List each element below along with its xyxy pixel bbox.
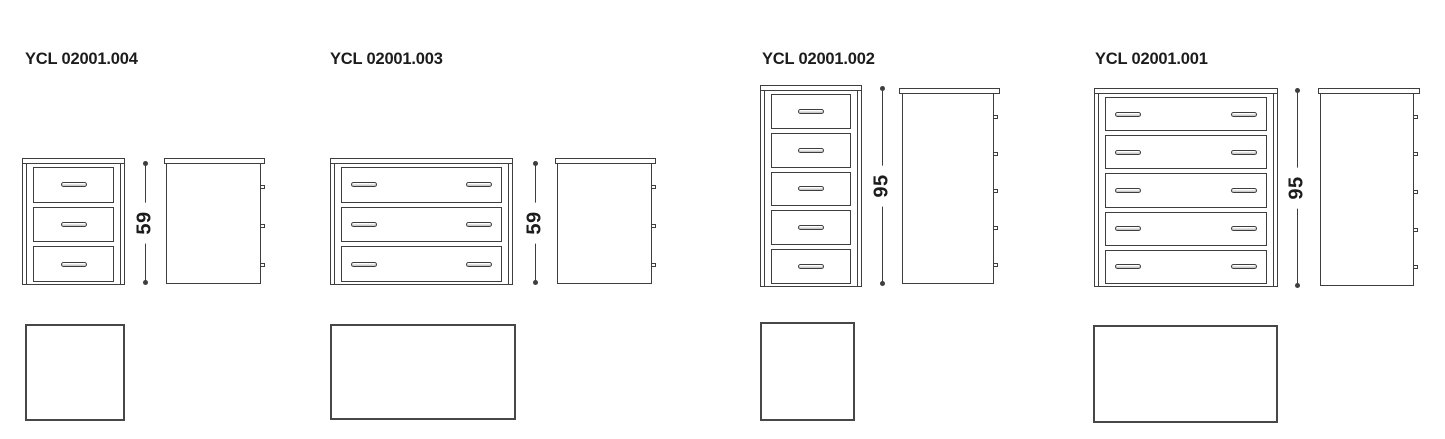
side-drawer-level (1320, 175, 1414, 209)
side-handle-mark (1413, 190, 1418, 194)
side-drawer-level (1320, 138, 1414, 172)
drawer-front (1105, 250, 1267, 284)
drawer-handle (1115, 264, 1141, 269)
side-drawer-level (1320, 213, 1414, 247)
side-drawer-level (1320, 250, 1414, 284)
side-handle-mark (1413, 265, 1418, 269)
drawer-handle (1115, 188, 1141, 193)
product-group-ycl-02001-001: YCL 02001.001 95 (0, 0, 1445, 439)
front-view (1094, 88, 1278, 287)
side-view-top-board (164, 158, 265, 164)
drawer-front (1105, 173, 1267, 207)
drawer-handle (1231, 150, 1257, 155)
cabinet-top-board (1095, 89, 1277, 94)
dimension-value: 95 (871, 165, 894, 206)
side-handle-mark (1413, 152, 1418, 156)
furniture-dimension-sheet: YCL 02001.004 59 YCL 02001.003 (0, 0, 1445, 439)
height-dimension: 95 (1283, 88, 1311, 288)
dimension-value: 95 (1286, 167, 1309, 208)
drawer-handle (1231, 264, 1257, 269)
right-stile (1273, 94, 1277, 286)
side-handle-mark (1413, 115, 1418, 119)
drawer-handle (1231, 226, 1257, 231)
dimension-value: 59 (524, 202, 547, 243)
drawer-handle (1231, 112, 1257, 117)
left-stile (1095, 94, 1099, 286)
drawer-handle (1115, 226, 1141, 231)
drawer-front (1105, 135, 1267, 169)
drawer-front (1105, 97, 1267, 131)
top-view (1093, 325, 1278, 423)
drawer-handle (1115, 112, 1141, 117)
drawer-front (1105, 212, 1267, 246)
drawer-handle (1231, 188, 1257, 193)
drawer-stack (1105, 97, 1267, 284)
side-view-top-board (555, 158, 656, 164)
side-view-handle-marks (1320, 100, 1414, 284)
side-view-top-board (899, 88, 1000, 94)
drawer-handle (1115, 150, 1141, 155)
side-drawer-level (1320, 100, 1414, 134)
dimension-endpoint (1295, 283, 1300, 288)
side-handle-mark (1413, 228, 1418, 232)
dimension-value: 59 (134, 202, 157, 243)
side-view-top-board (1318, 88, 1420, 94)
product-code-label: YCL 02001.001 (1095, 50, 1208, 69)
